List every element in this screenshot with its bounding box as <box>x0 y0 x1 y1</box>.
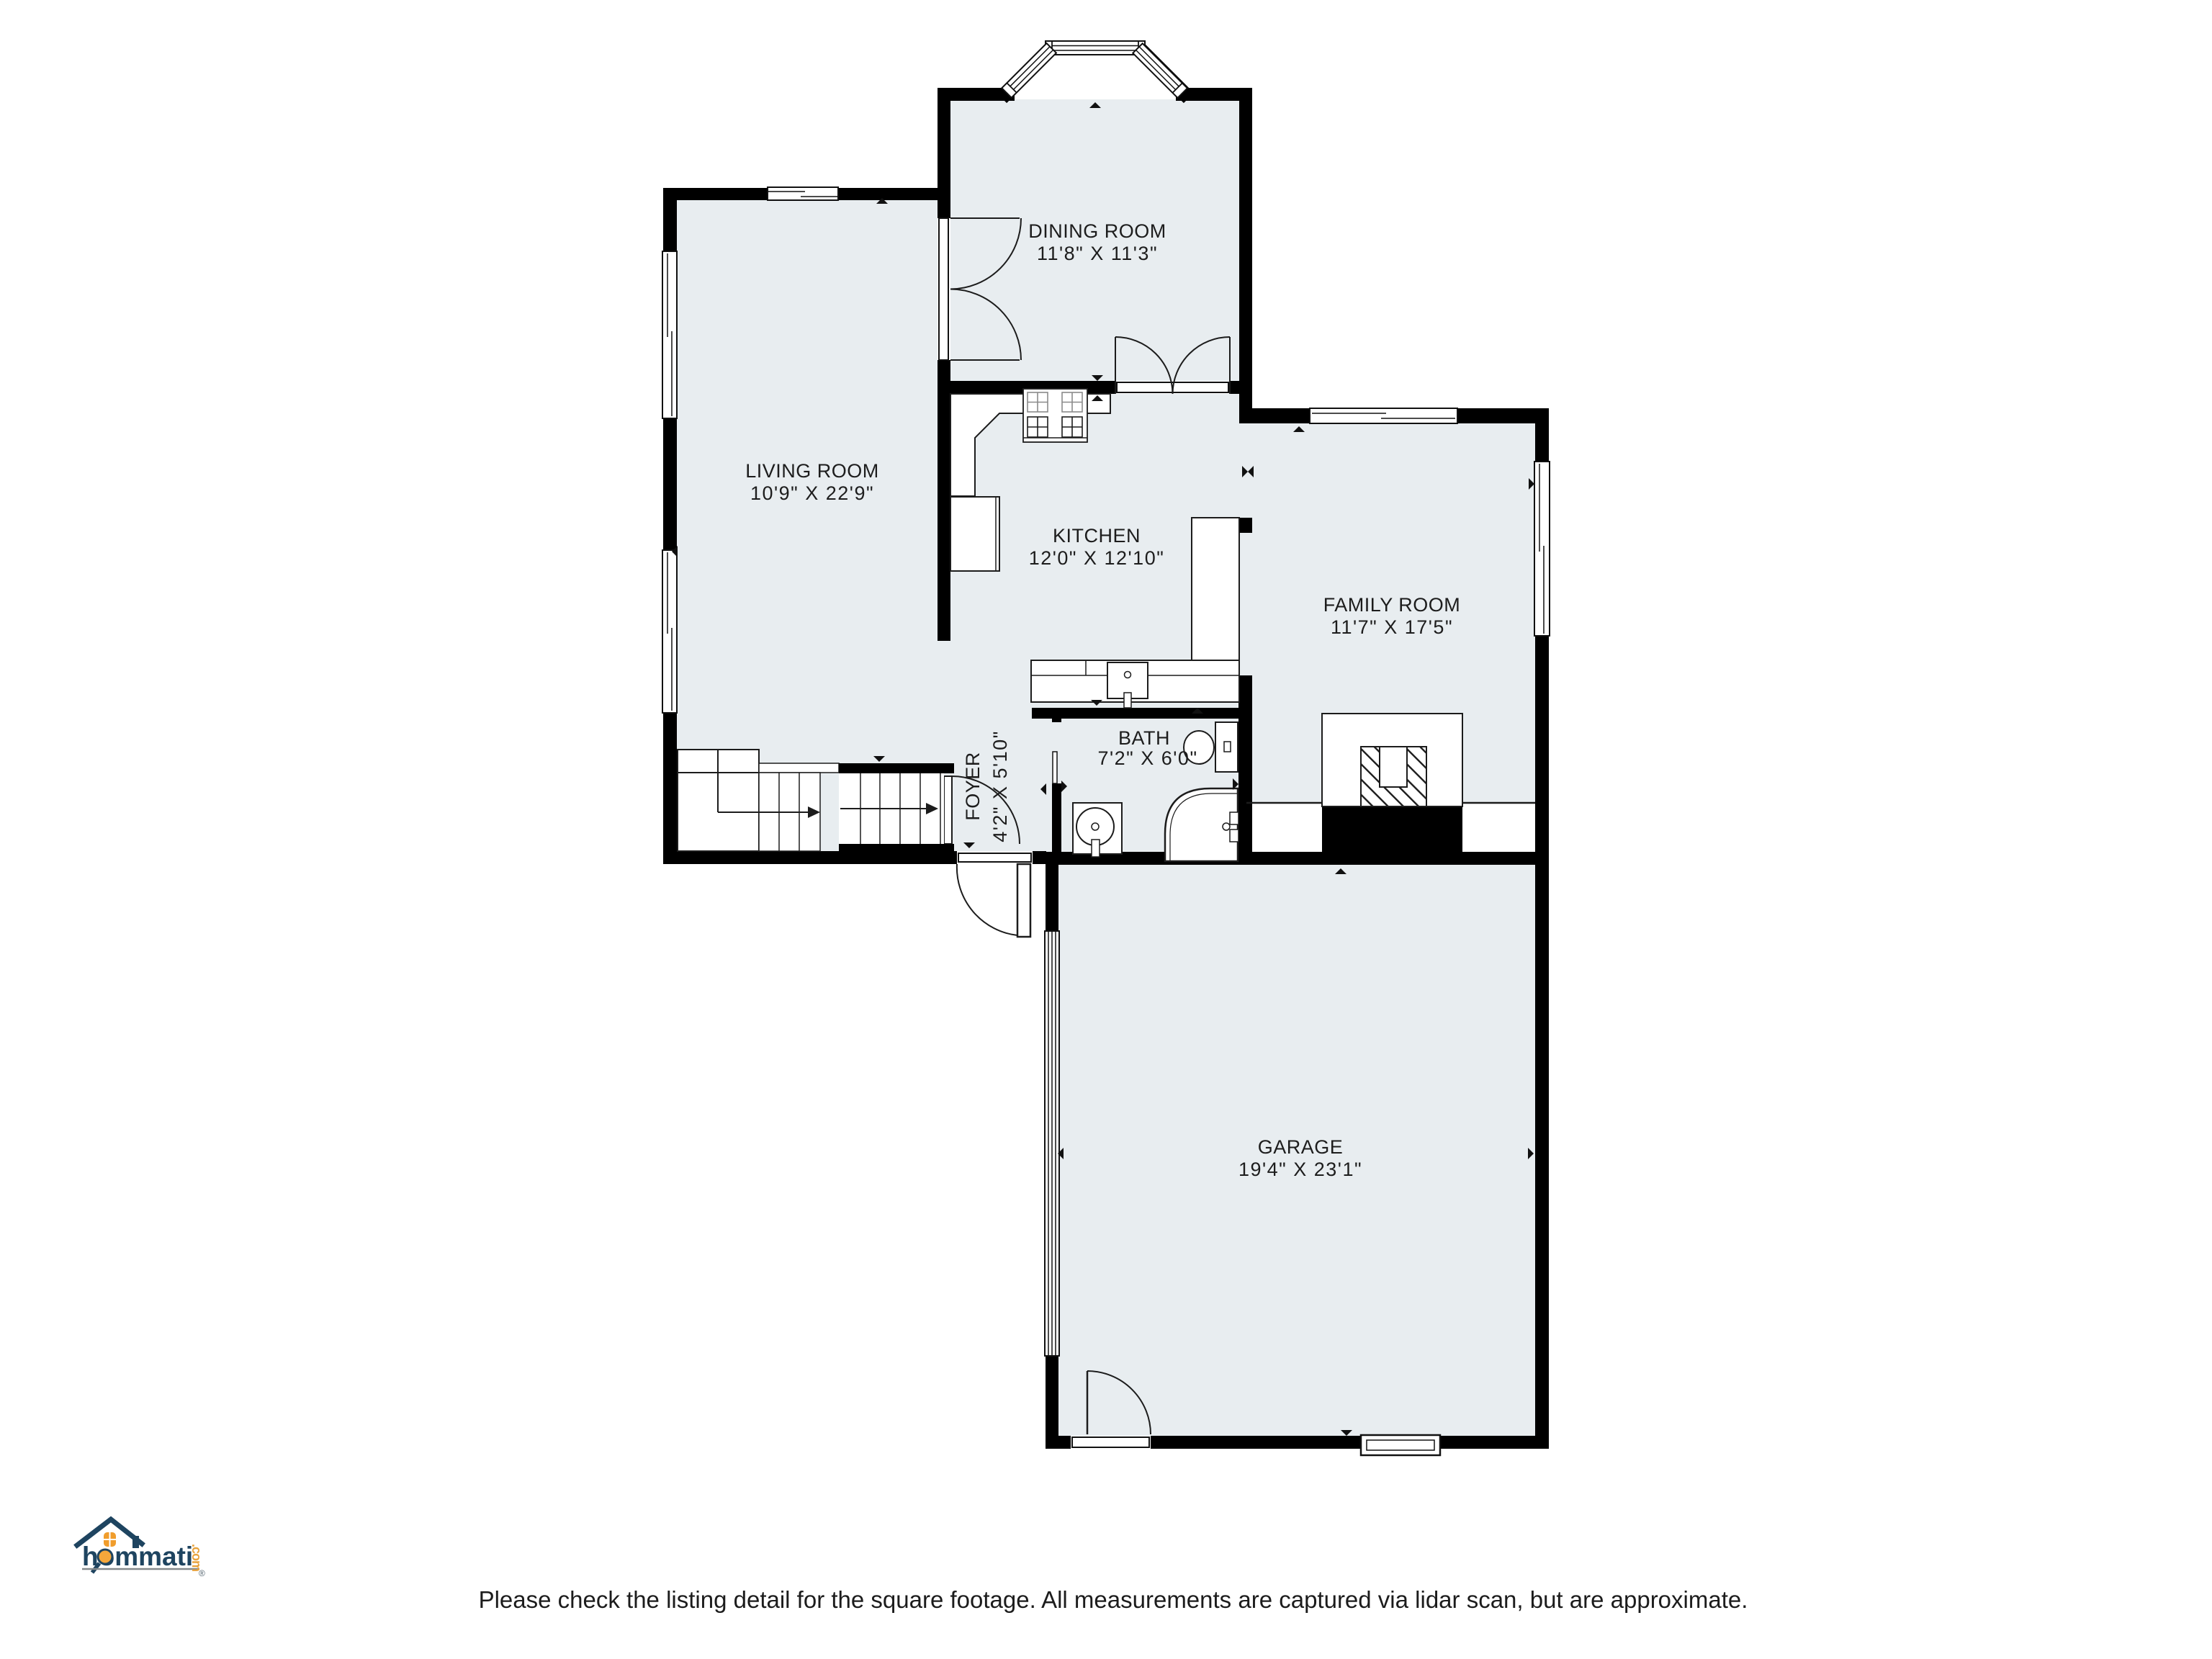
svg-text:11'7" X 17'5": 11'7" X 17'5" <box>1331 616 1453 638</box>
svg-text:4'2" X 5'10": 4'2" X 5'10" <box>989 730 1011 842</box>
svg-text:®: ® <box>199 1568 205 1578</box>
svg-text:Please check the listing detai: Please check the listing detail for the … <box>479 1586 1748 1613</box>
svg-text:11'8" X 11'3": 11'8" X 11'3" <box>1037 243 1158 264</box>
svg-text:12'0" X 12'10": 12'0" X 12'10" <box>1029 547 1165 569</box>
svg-text:10'9" X 22'9": 10'9" X 22'9" <box>750 482 874 504</box>
svg-text:19'4" X 23'1": 19'4" X 23'1" <box>1238 1159 1362 1180</box>
svg-text:7'2" X 6'0": 7'2" X 6'0" <box>1097 747 1197 769</box>
svg-text:FOYER: FOYER <box>962 752 984 821</box>
svg-text:GARAGE: GARAGE <box>1258 1136 1344 1158</box>
svg-text:FAMILY ROOM: FAMILY ROOM <box>1323 594 1461 616</box>
svg-text:KITCHEN: KITCHEN <box>1053 525 1141 547</box>
svg-text:BATH: BATH <box>1118 727 1170 749</box>
svg-text:LIVING ROOM: LIVING ROOM <box>745 460 879 482</box>
svg-text:.com: .com <box>189 1544 204 1571</box>
svg-text:DINING ROOM: DINING ROOM <box>1028 220 1166 242</box>
